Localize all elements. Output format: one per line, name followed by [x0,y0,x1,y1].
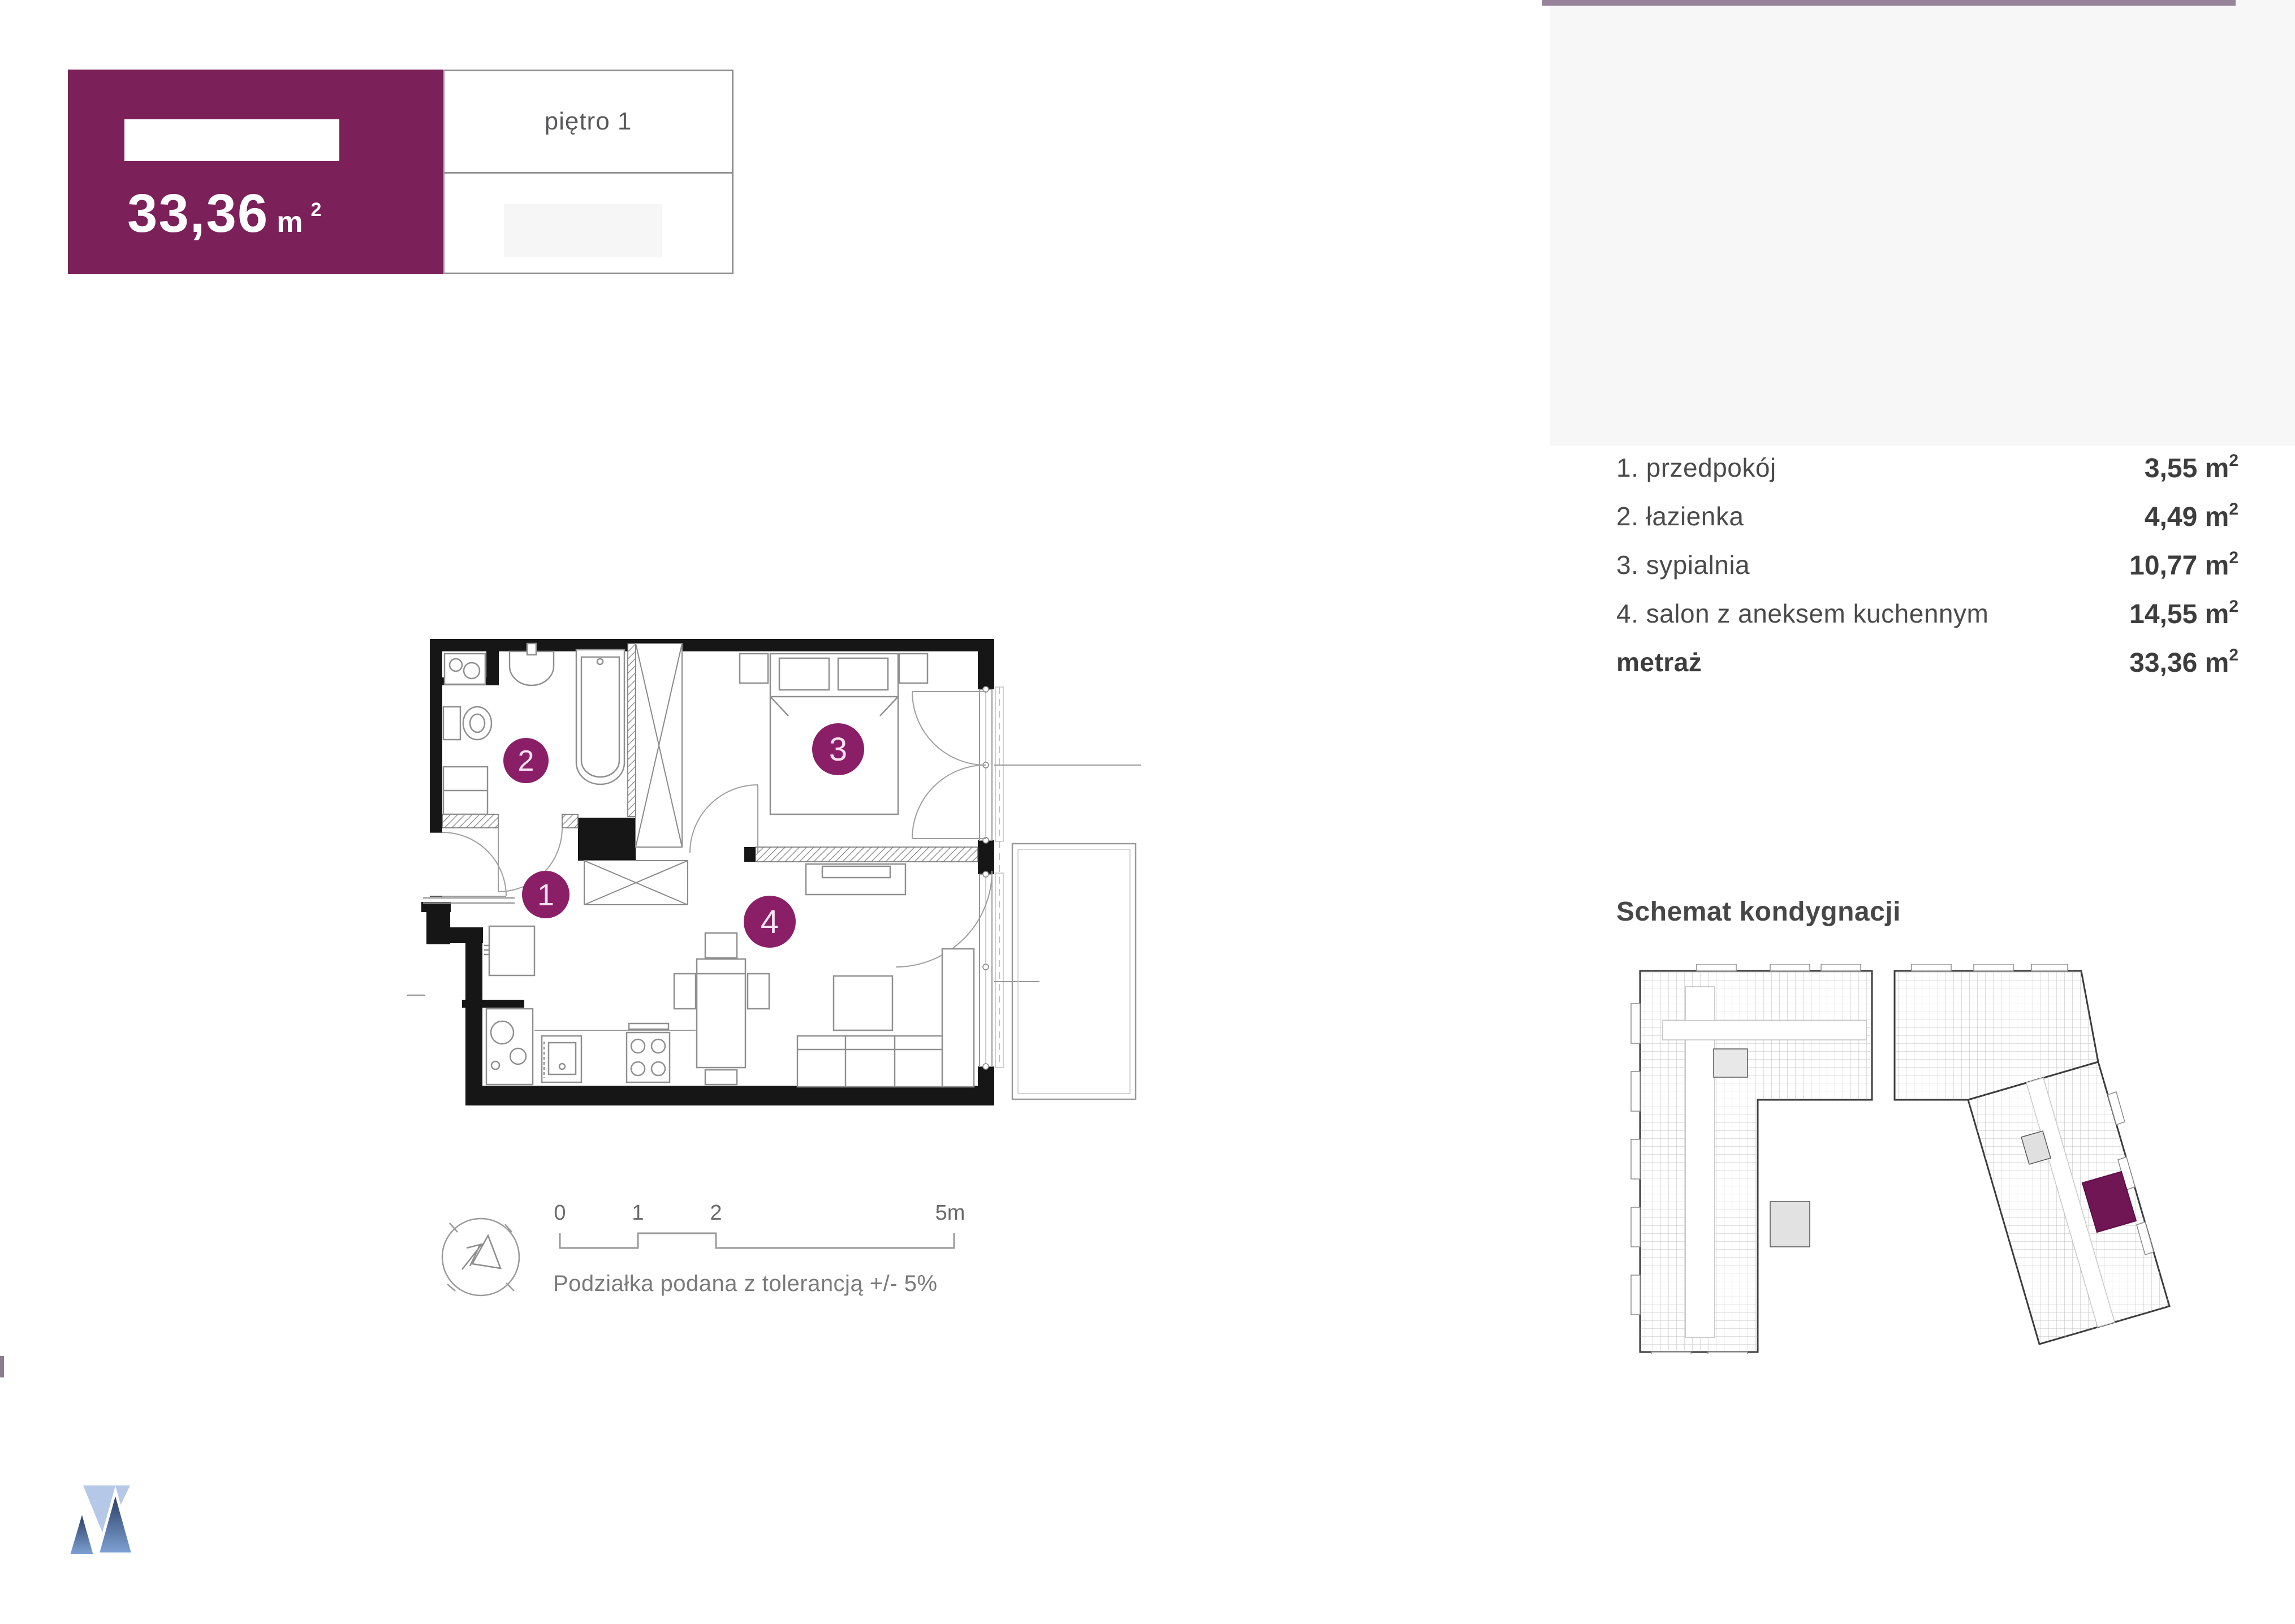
bathroom-cabinet [443,767,488,814]
total-area: 33,36 m2 [2129,646,2238,679]
room-number-3: 3 [829,731,847,768]
room-label: 1. przedpokój [1616,452,1776,483]
room-row-3: 3. sypialnia 10,77 m2 [1616,541,2238,589]
living-furniture [674,933,974,1087]
coffee-table [834,976,892,1030]
room-circle-2: 2 [503,738,549,783]
scale-tick-1: 1 [632,1201,644,1225]
area-unit-sup: 2 [310,199,321,221]
nightstand-right [899,654,928,683]
bathtub [576,650,624,784]
section-title: Schemat kondygnacji [1616,896,1901,927]
tv-cabinet [806,864,905,895]
redacted-project-name [124,119,339,161]
room-label: 2. łazienka [1616,501,1744,532]
shaft-closet [636,643,682,847]
door-jambs [430,832,442,896]
area-card: 33,36m2 [68,70,443,274]
scale-bar: 0 1 2 5m [537,1196,990,1258]
schematic-left-wing [1631,964,1872,1354]
room-row-4: 4. salon z aneksem kuchennym 14,55 m2 [1616,589,2238,638]
area-unit: m [277,206,303,239]
oven [542,1036,581,1082]
room-label: 4. salon z aneksem kuchennym [1616,598,1988,629]
total-label: metraż [1616,647,1702,677]
room-row-total: metraż 33,36 m2 [1616,638,2238,686]
area-value: 33,36 [127,183,269,244]
scale-tick-2: 2 [710,1201,722,1225]
room-area: 4,49 m2 [2145,500,2238,533]
schematic-right-wing [1895,964,2169,1344]
scale-tick-0: 0 [554,1201,566,1225]
top-accent-line [1542,0,2236,6]
redacted-floor-cell [504,204,662,257]
room-list: 1. przedpokój 3,55 m2 2. łazienka 4,49 m… [1616,443,2238,686]
bathroom-fixtures [443,643,624,814]
room-area: 10,77 m2 [2129,548,2238,581]
room-circle-3: 3 [812,723,864,775]
floor-plan: 2 1 3 4 [396,633,1142,1125]
room-row-1: 1. przedpokój 3,55 m2 [1616,443,2238,492]
washing-machine [445,654,485,684]
room-row-2: 2. łazienka 4,49 m2 [1616,492,2238,541]
scale-tick-5m: 5m [935,1201,965,1225]
glazing [980,686,1141,1069]
room-circle-1: 1 [522,871,570,918]
room-area: 14,55 m2 [2129,597,2238,630]
developer-logo [67,1477,136,1557]
room-number-4: 4 [761,904,779,940]
dining-set [674,933,769,1085]
top-right-panel [1550,0,2295,446]
kitchen-sink-unit [486,1009,533,1085]
apartment-area: 33,36m2 [127,183,321,245]
logo-left-peak [69,1511,94,1555]
fridge [484,926,534,975]
apartment-card-page: 33,36m2 piętro 1 1. przedpokój 3,55 m2 2… [0,0,2295,1624]
nightstand-left [740,654,768,683]
toilet [443,707,491,740]
room-circle-4: 4 [744,896,796,948]
compass-icon [433,1207,534,1309]
floor-box-divider [445,172,732,174]
balcony [1012,844,1136,1099]
stove [627,1023,670,1082]
hall-wardrobe [584,861,688,905]
room-label: 3. sypialnia [1616,550,1750,580]
floor-box: piętro 1 [443,70,734,274]
building-schematic [1629,964,2217,1354]
left-edge-mark [0,1356,4,1377]
scale-caption: Podziałka podana z tolerancją +/- 5% [553,1271,938,1297]
room-area: 3,55 m2 [2145,451,2238,484]
room-number-1: 1 [537,878,554,912]
floor-label: piętro 1 [445,71,732,172]
room-number-2: 2 [518,745,534,778]
